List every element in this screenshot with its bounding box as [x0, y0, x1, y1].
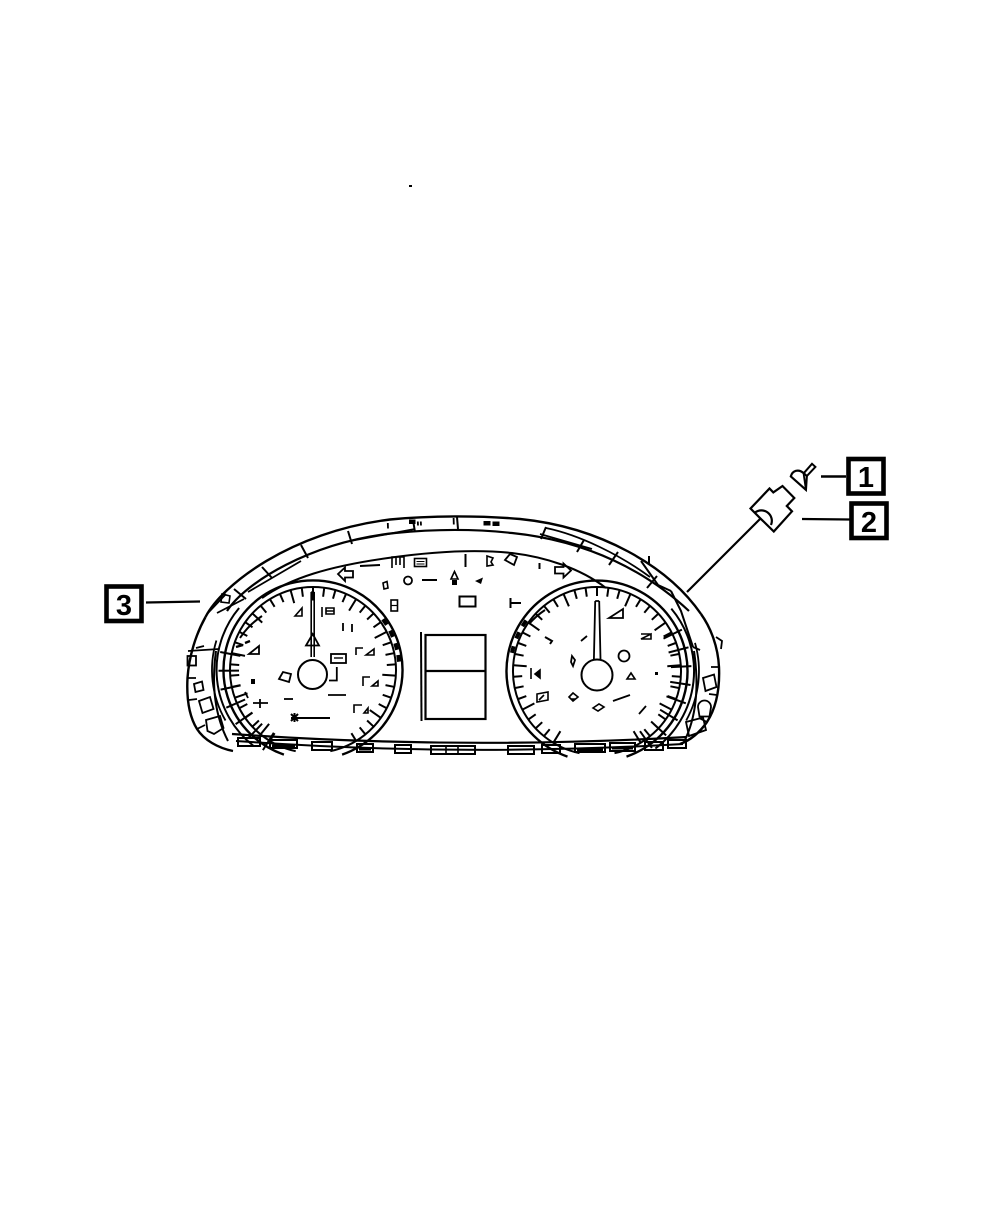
- svg-text:2: 2: [861, 507, 877, 539]
- svg-text:1: 1: [858, 462, 874, 494]
- svg-text:3: 3: [116, 590, 132, 622]
